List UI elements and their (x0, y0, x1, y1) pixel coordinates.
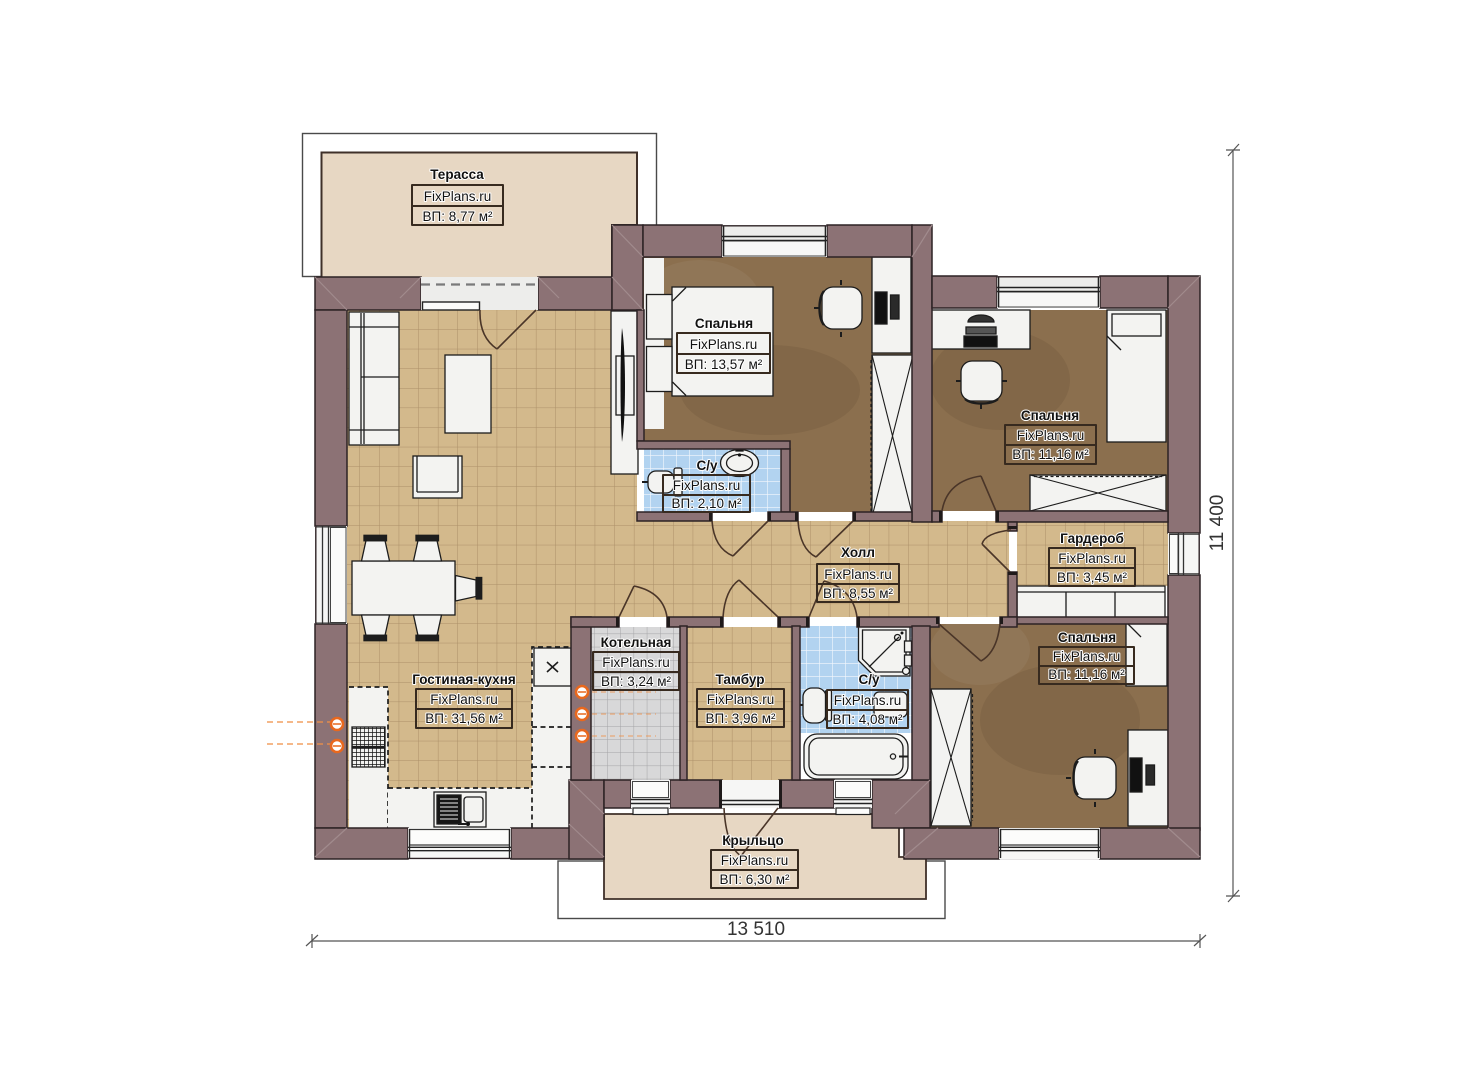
svg-text:С/у: С/у (696, 458, 718, 473)
svg-text:ВП: 11,16 м²: ВП: 11,16 м² (1012, 447, 1089, 462)
svg-text:FixPlans.ru: FixPlans.ru (1058, 551, 1126, 566)
svg-text:ВП: 6,30 м²: ВП: 6,30 м² (719, 872, 790, 887)
svg-text:С/у: С/у (858, 672, 880, 687)
svg-text:FixPlans.ru: FixPlans.ru (824, 567, 892, 582)
svg-text:ВП: 2,10 м²: ВП: 2,10 м² (671, 496, 742, 511)
svg-text:FixPlans.ru: FixPlans.ru (1053, 649, 1121, 664)
svg-text:Терасса: Терасса (430, 167, 484, 182)
svg-text:Тамбур: Тамбур (716, 672, 765, 687)
svg-text:ВП: 31,56 м²: ВП: 31,56 м² (425, 711, 503, 726)
svg-text:Крыльцо: Крыльцо (722, 833, 783, 848)
svg-text:FixPlans.ru: FixPlans.ru (690, 337, 758, 352)
svg-text:13 510: 13 510 (727, 919, 785, 940)
svg-text:Спальня: Спальня (1021, 408, 1079, 423)
svg-text:ВП: 13,57 м²: ВП: 13,57 м² (685, 357, 763, 372)
svg-text:ВП: 8,55 м²: ВП: 8,55 м² (823, 586, 894, 601)
svg-text:ВП: 3,45 м²: ВП: 3,45 м² (1057, 570, 1128, 585)
svg-text:FixPlans.ru: FixPlans.ru (834, 693, 902, 708)
svg-text:FixPlans.ru: FixPlans.ru (721, 853, 789, 868)
svg-text:ВП: 8,77 м²: ВП: 8,77 м² (422, 209, 493, 224)
svg-text:Спальня: Спальня (1058, 630, 1116, 645)
svg-text:ВП: 11,16 м²: ВП: 11,16 м² (1048, 667, 1125, 682)
svg-text:FixPlans.ru: FixPlans.ru (430, 692, 498, 707)
svg-text:11 400: 11 400 (1207, 495, 1228, 552)
svg-text:ВП: 4,08 м²: ВП: 4,08 м² (832, 712, 903, 727)
svg-text:FixPlans.ru: FixPlans.ru (424, 189, 492, 204)
svg-text:FixPlans.ru: FixPlans.ru (1017, 428, 1085, 443)
svg-text:ВП: 3,24 м²: ВП: 3,24 м² (601, 674, 672, 689)
svg-text:ВП: 3,96 м²: ВП: 3,96 м² (705, 711, 776, 726)
svg-text:FixPlans.ru: FixPlans.ru (673, 478, 741, 493)
svg-text:FixPlans.ru: FixPlans.ru (602, 655, 670, 670)
svg-text:Спальня: Спальня (695, 316, 753, 331)
svg-text:Холл: Холл (841, 545, 875, 560)
svg-text:Гардероб: Гардероб (1060, 531, 1124, 546)
svg-text:FixPlans.ru: FixPlans.ru (707, 692, 775, 707)
svg-text:Котельная: Котельная (601, 635, 672, 650)
svg-text:Гостиная-кухня: Гостиная-кухня (412, 672, 515, 687)
